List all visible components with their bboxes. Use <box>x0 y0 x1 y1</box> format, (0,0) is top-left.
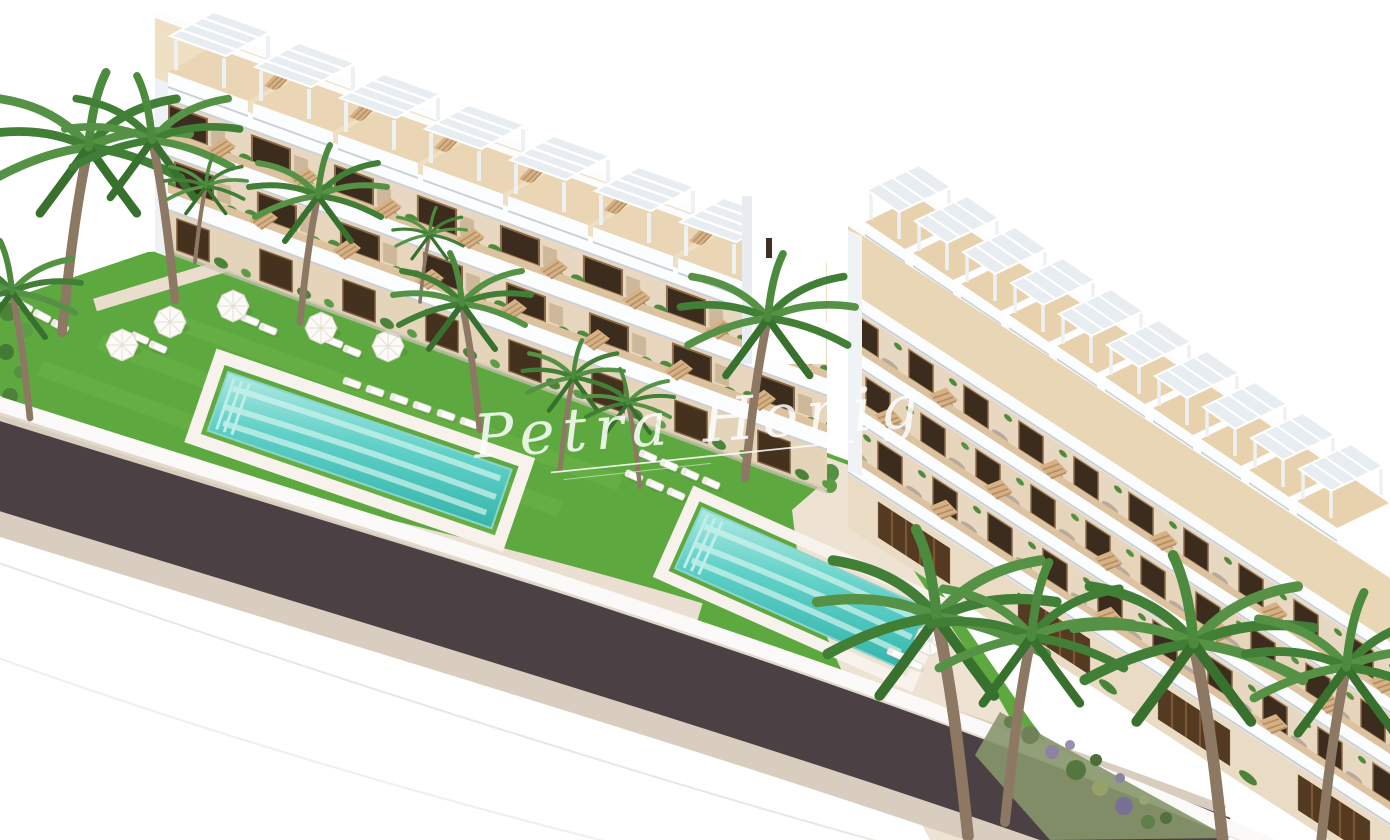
architectural-render: Petra Honig <box>0 0 1390 840</box>
render-scene: Petra Honig <box>0 0 1390 840</box>
